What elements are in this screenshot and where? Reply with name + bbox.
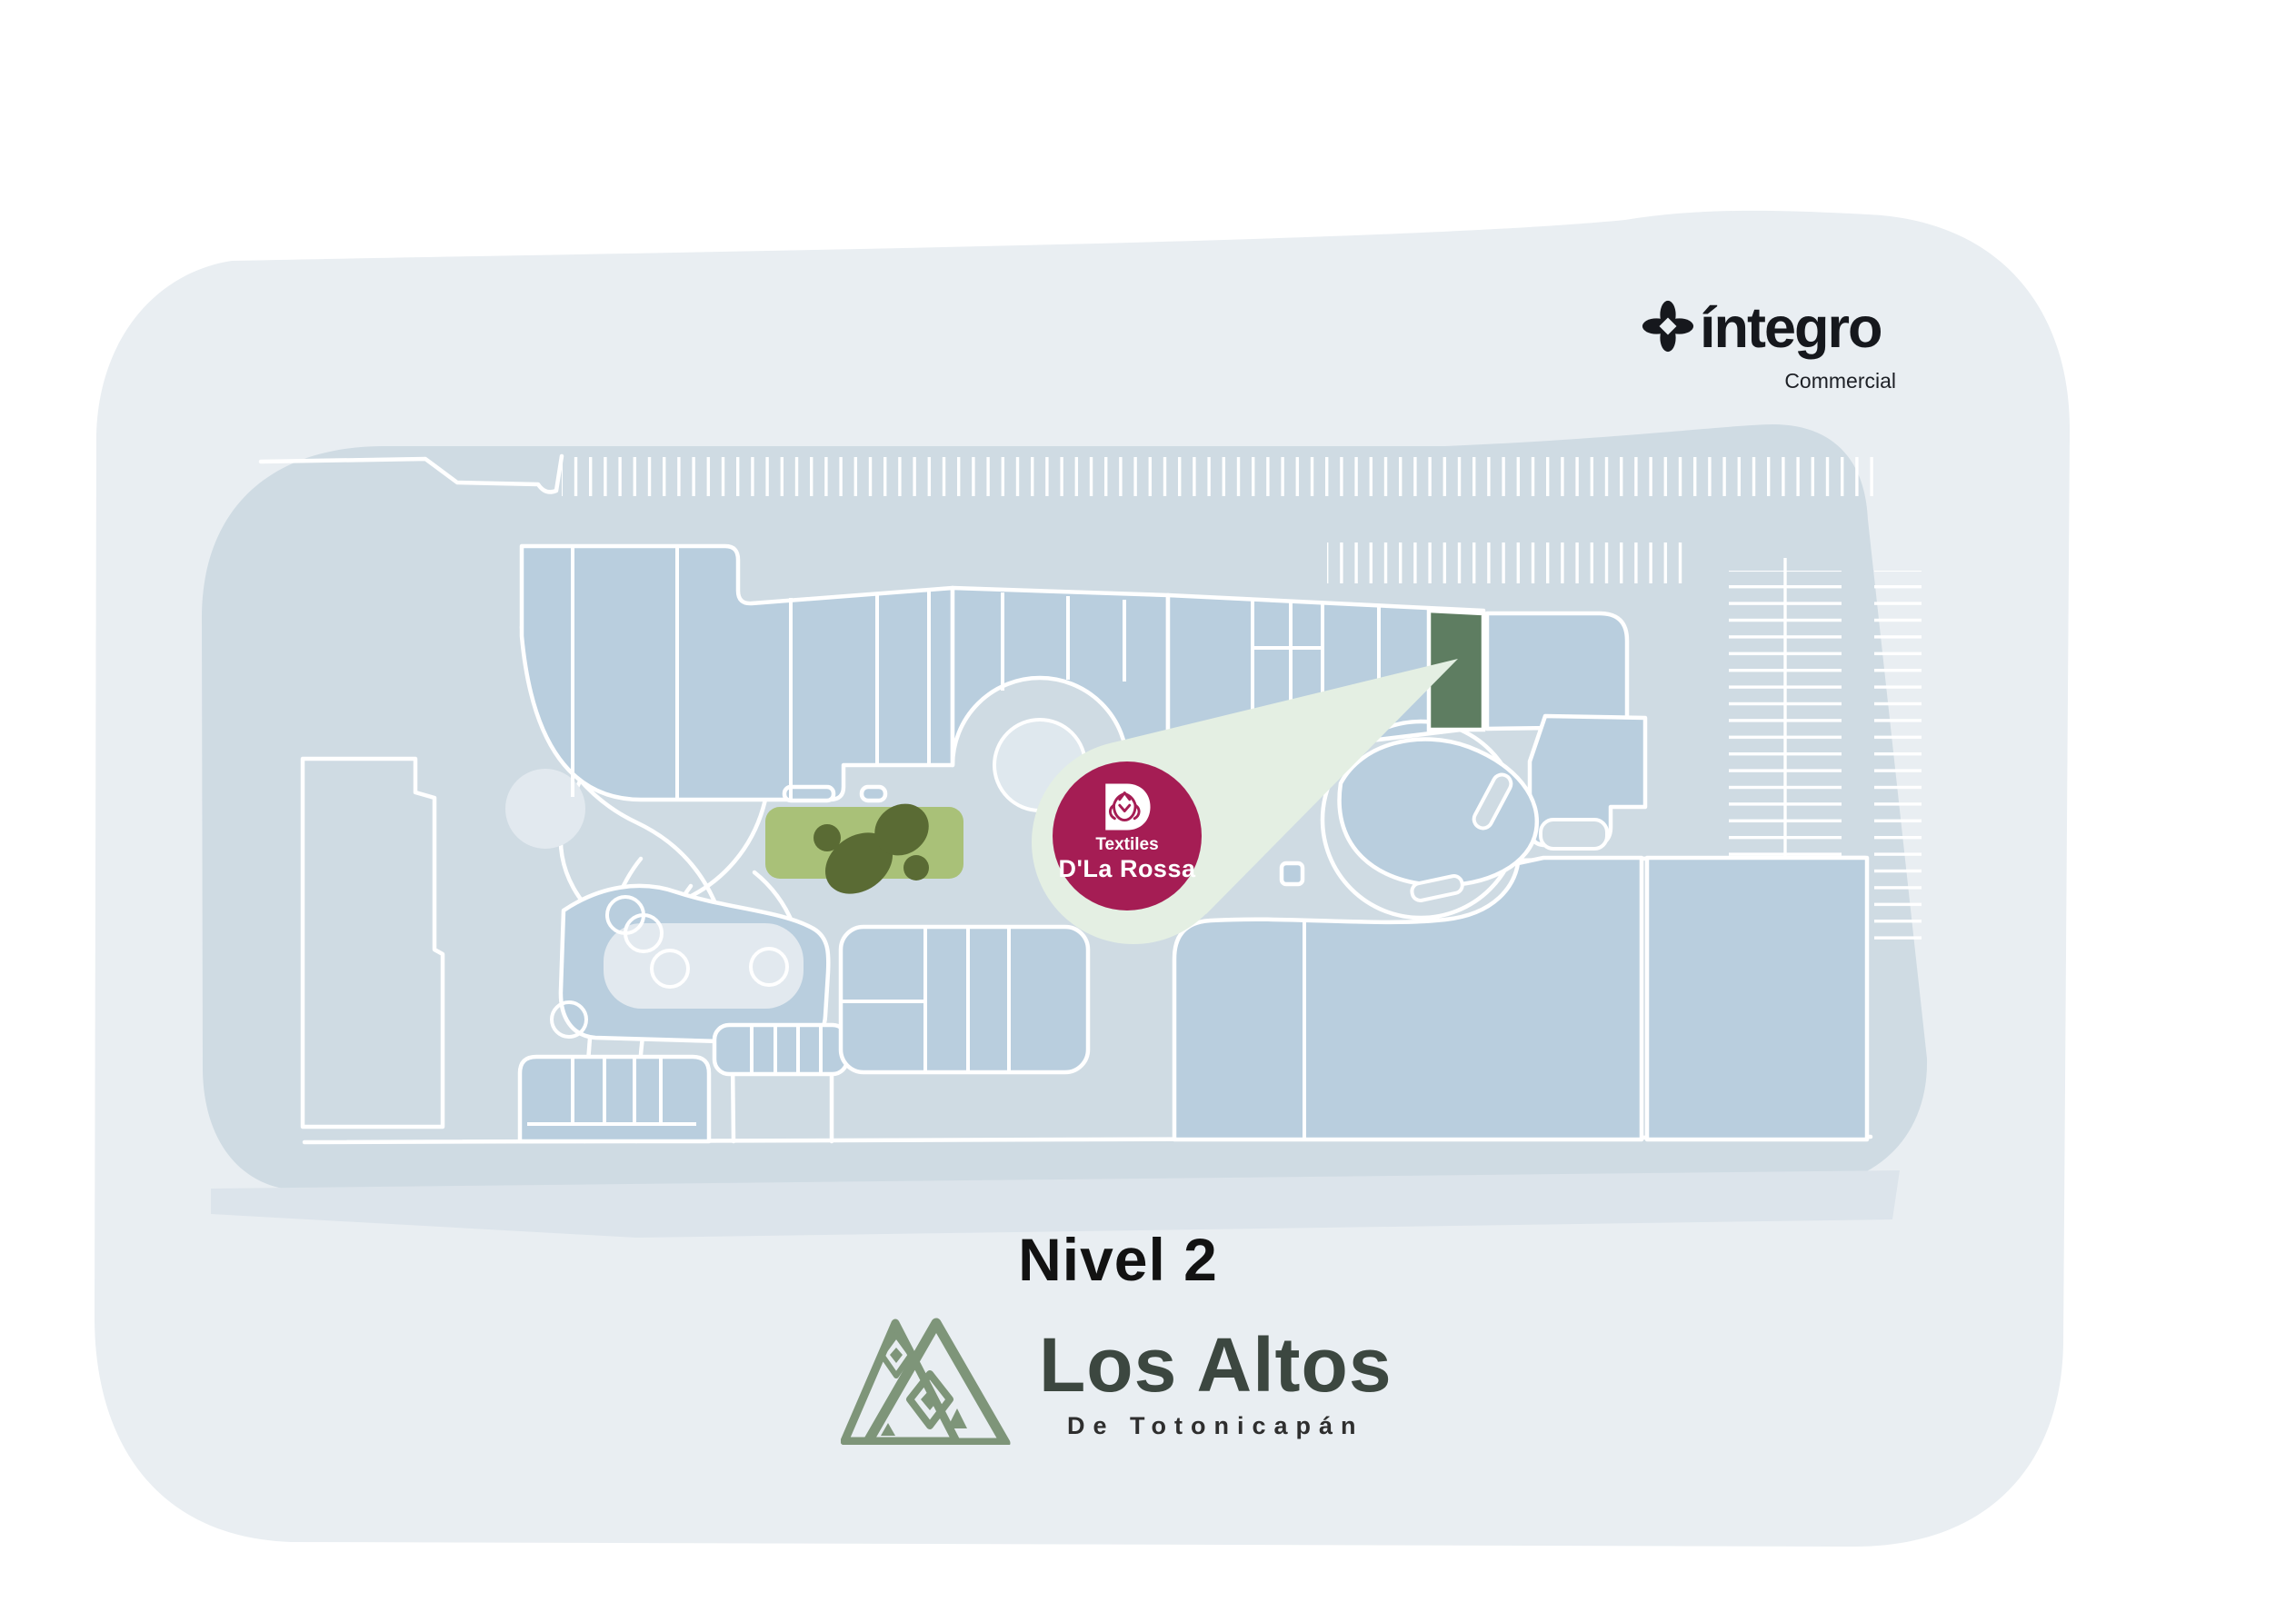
badge-store-name: D'La Rossa [1059, 855, 1196, 883]
sparkle-diamond-icon [1642, 300, 1694, 357]
brand-tagline: Commercial [1784, 369, 1896, 393]
rose-d-monogram-icon [1099, 780, 1155, 834]
mall-logo: Los Altos De Totonicapán [841, 1309, 1477, 1481]
level-label: Nivel 2 [936, 1225, 1300, 1294]
store-badge[interactable]: Textiles D'La Rossa [1053, 761, 1202, 911]
badge-store-type: Textiles [1095, 836, 1158, 855]
mall-subtitle: De Totonicapán [1067, 1412, 1364, 1440]
foodcourt-plaza [604, 923, 804, 1009]
developer-brand: íntegro Commercial [1642, 300, 1932, 409]
brand-name: íntegro [1700, 300, 1882, 357]
mall-name: Los Altos [1039, 1327, 1393, 1403]
mountains-icon [841, 1309, 1013, 1449]
